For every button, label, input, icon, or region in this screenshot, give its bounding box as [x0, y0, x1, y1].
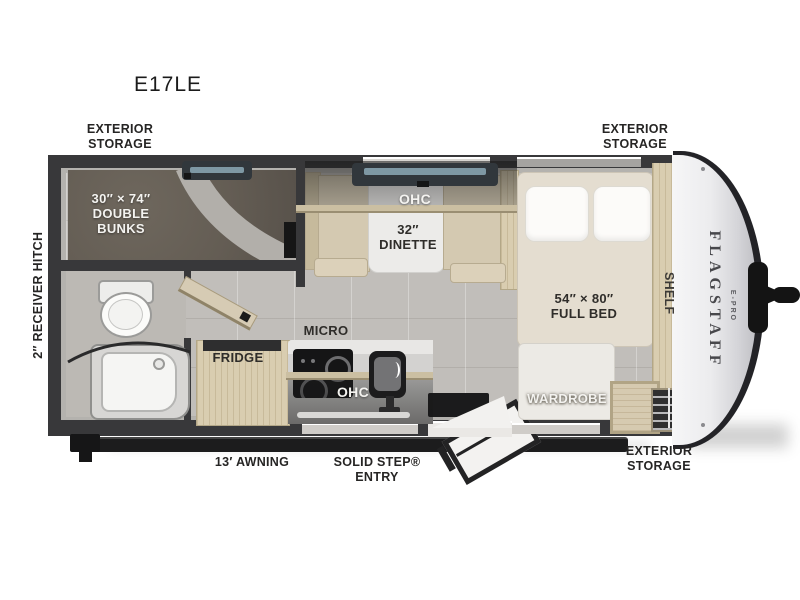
- cap-rivet-bottom: [701, 423, 705, 427]
- window-bottom-kitchen: [302, 423, 418, 434]
- exterior-storage-label-top-left: EXTERIOR STORAGE: [70, 122, 170, 151]
- fridge-label: FRIDGE: [188, 351, 288, 366]
- pillow-right: [593, 186, 651, 242]
- front-storage-vent-divider: [668, 388, 670, 428]
- double-bunks-label: 30″ × 74″ DOUBLE BUNKS: [71, 192, 171, 237]
- model-title: E17LE: [118, 74, 218, 95]
- dinette-window-glass: [364, 168, 486, 175]
- exterior-storage-label-bottom-right: EXTERIOR STORAGE: [609, 444, 709, 473]
- wall-bunk-bath-divider: [48, 260, 305, 271]
- pillow-left: [525, 186, 589, 242]
- hitch-jack-arm: [772, 287, 800, 303]
- micro-label: MICRO: [276, 324, 376, 339]
- kitchen-ohc-label: OHC: [303, 384, 403, 400]
- shower-curtain-rod: [60, 324, 200, 368]
- dinette-label: 32″ DINETTE: [358, 223, 458, 253]
- kitchen-ohc-edge: [286, 372, 433, 380]
- shelf-label: SHELF: [662, 243, 676, 343]
- wardrobe-label: WARDROBE: [517, 392, 617, 407]
- bunk-window-glass: [190, 167, 244, 173]
- dinette-window-latch: [417, 181, 429, 187]
- bunk-ladder: [284, 222, 296, 258]
- dinette-bench-right-step: [450, 263, 506, 283]
- awning-label: 13′ AWNING: [192, 455, 312, 470]
- solid-step-entry-label: SOLID STEP® ENTRY: [317, 455, 437, 484]
- cooktop-knob-2: [311, 359, 315, 363]
- receiver-hitch-label: 2″ RECEIVER HITCH: [31, 195, 46, 395]
- window-top-bed: [517, 157, 641, 167]
- dinette-window: [352, 163, 498, 186]
- towel-bar: [297, 412, 410, 418]
- sink-faucet-arc: [390, 362, 400, 378]
- wardrobe: [518, 343, 615, 420]
- full-bed-label: 54″ × 80″ FULL BED: [534, 292, 634, 322]
- brand-logo: FLAGSTAFF: [702, 220, 722, 380]
- wall-stub-dinette: [296, 167, 305, 287]
- bunk-window: [182, 161, 252, 180]
- cooktop-knob-1: [301, 359, 305, 363]
- floorplan-canvas: E17LE EXTERIOR STORAGE EXTERIOR STORAGE …: [0, 0, 800, 600]
- window-bottom-wardrobe: [505, 423, 600, 434]
- door-handle: [239, 311, 251, 322]
- awning-bar: [88, 437, 628, 452]
- dinette-bench-left-step: [314, 258, 368, 277]
- dinette-ohc-label: OHC: [365, 191, 465, 207]
- exterior-storage-label-top-right: EXTERIOR STORAGE: [585, 122, 685, 151]
- bunk-window-latch: [184, 173, 191, 179]
- brand-sub-logo: E-PRO: [726, 256, 736, 356]
- cap-rivet-top: [701, 167, 705, 171]
- rear-receiver-tube: [79, 450, 92, 462]
